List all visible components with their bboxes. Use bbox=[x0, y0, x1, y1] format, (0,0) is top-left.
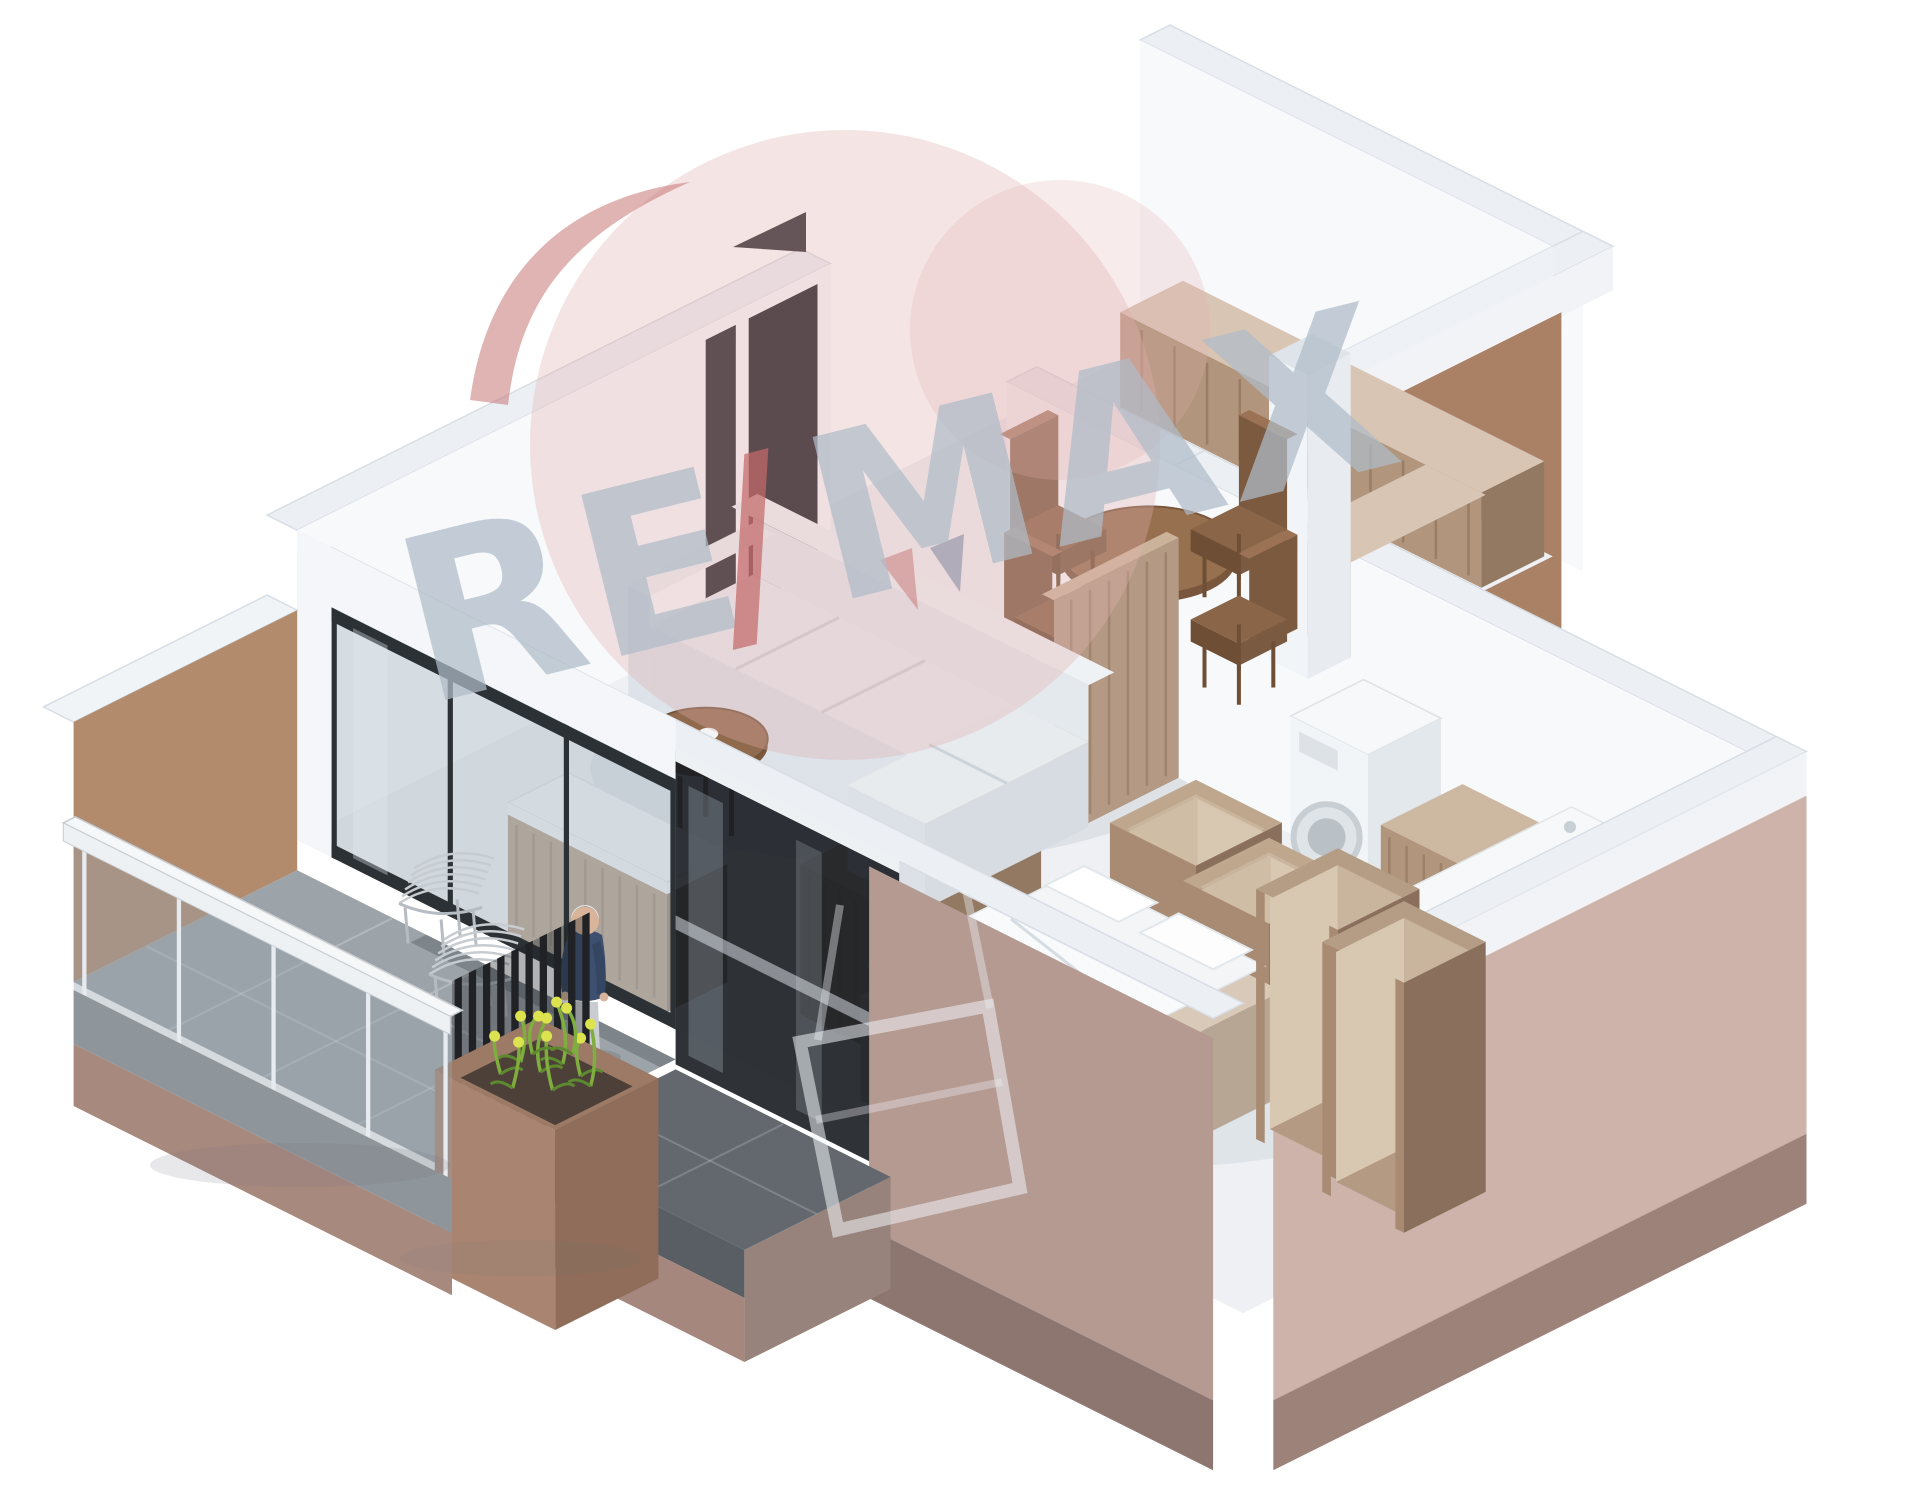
flower bbox=[561, 1003, 572, 1014]
ground-shadow bbox=[400, 1240, 640, 1276]
door-glass-reflection bbox=[353, 628, 387, 875]
wardrobe-inner-side bbox=[1336, 918, 1404, 1182]
wardrobe-side bbox=[1404, 942, 1486, 1233]
railing-post bbox=[271, 937, 275, 1091]
flower bbox=[513, 1037, 524, 1048]
floor-plan-render: RE / MAX bbox=[0, 0, 1920, 1488]
ground-shadow bbox=[150, 1143, 450, 1187]
tub-faucet bbox=[1564, 821, 1576, 833]
railing-post bbox=[443, 1023, 447, 1177]
balcony-door-mullion bbox=[670, 777, 675, 1030]
flower bbox=[585, 1019, 596, 1030]
railing-post bbox=[366, 984, 370, 1138]
flower bbox=[541, 1031, 552, 1042]
person-hand bbox=[600, 993, 609, 1002]
flower bbox=[515, 1011, 526, 1022]
wardrobe-edge bbox=[1395, 979, 1404, 1233]
flower bbox=[551, 997, 562, 1008]
railing-post bbox=[82, 842, 86, 996]
balcony-door-mullion bbox=[332, 607, 337, 860]
se-wall-stub bbox=[297, 530, 331, 857]
flower bbox=[489, 1031, 500, 1042]
isometric-apartment-svg: RE / MAX bbox=[0, 0, 1920, 1488]
railing-post bbox=[177, 890, 181, 1044]
flower bbox=[533, 1011, 544, 1022]
wardrobe-edge bbox=[1322, 942, 1331, 1196]
wardrobe-edge bbox=[1256, 889, 1265, 1143]
